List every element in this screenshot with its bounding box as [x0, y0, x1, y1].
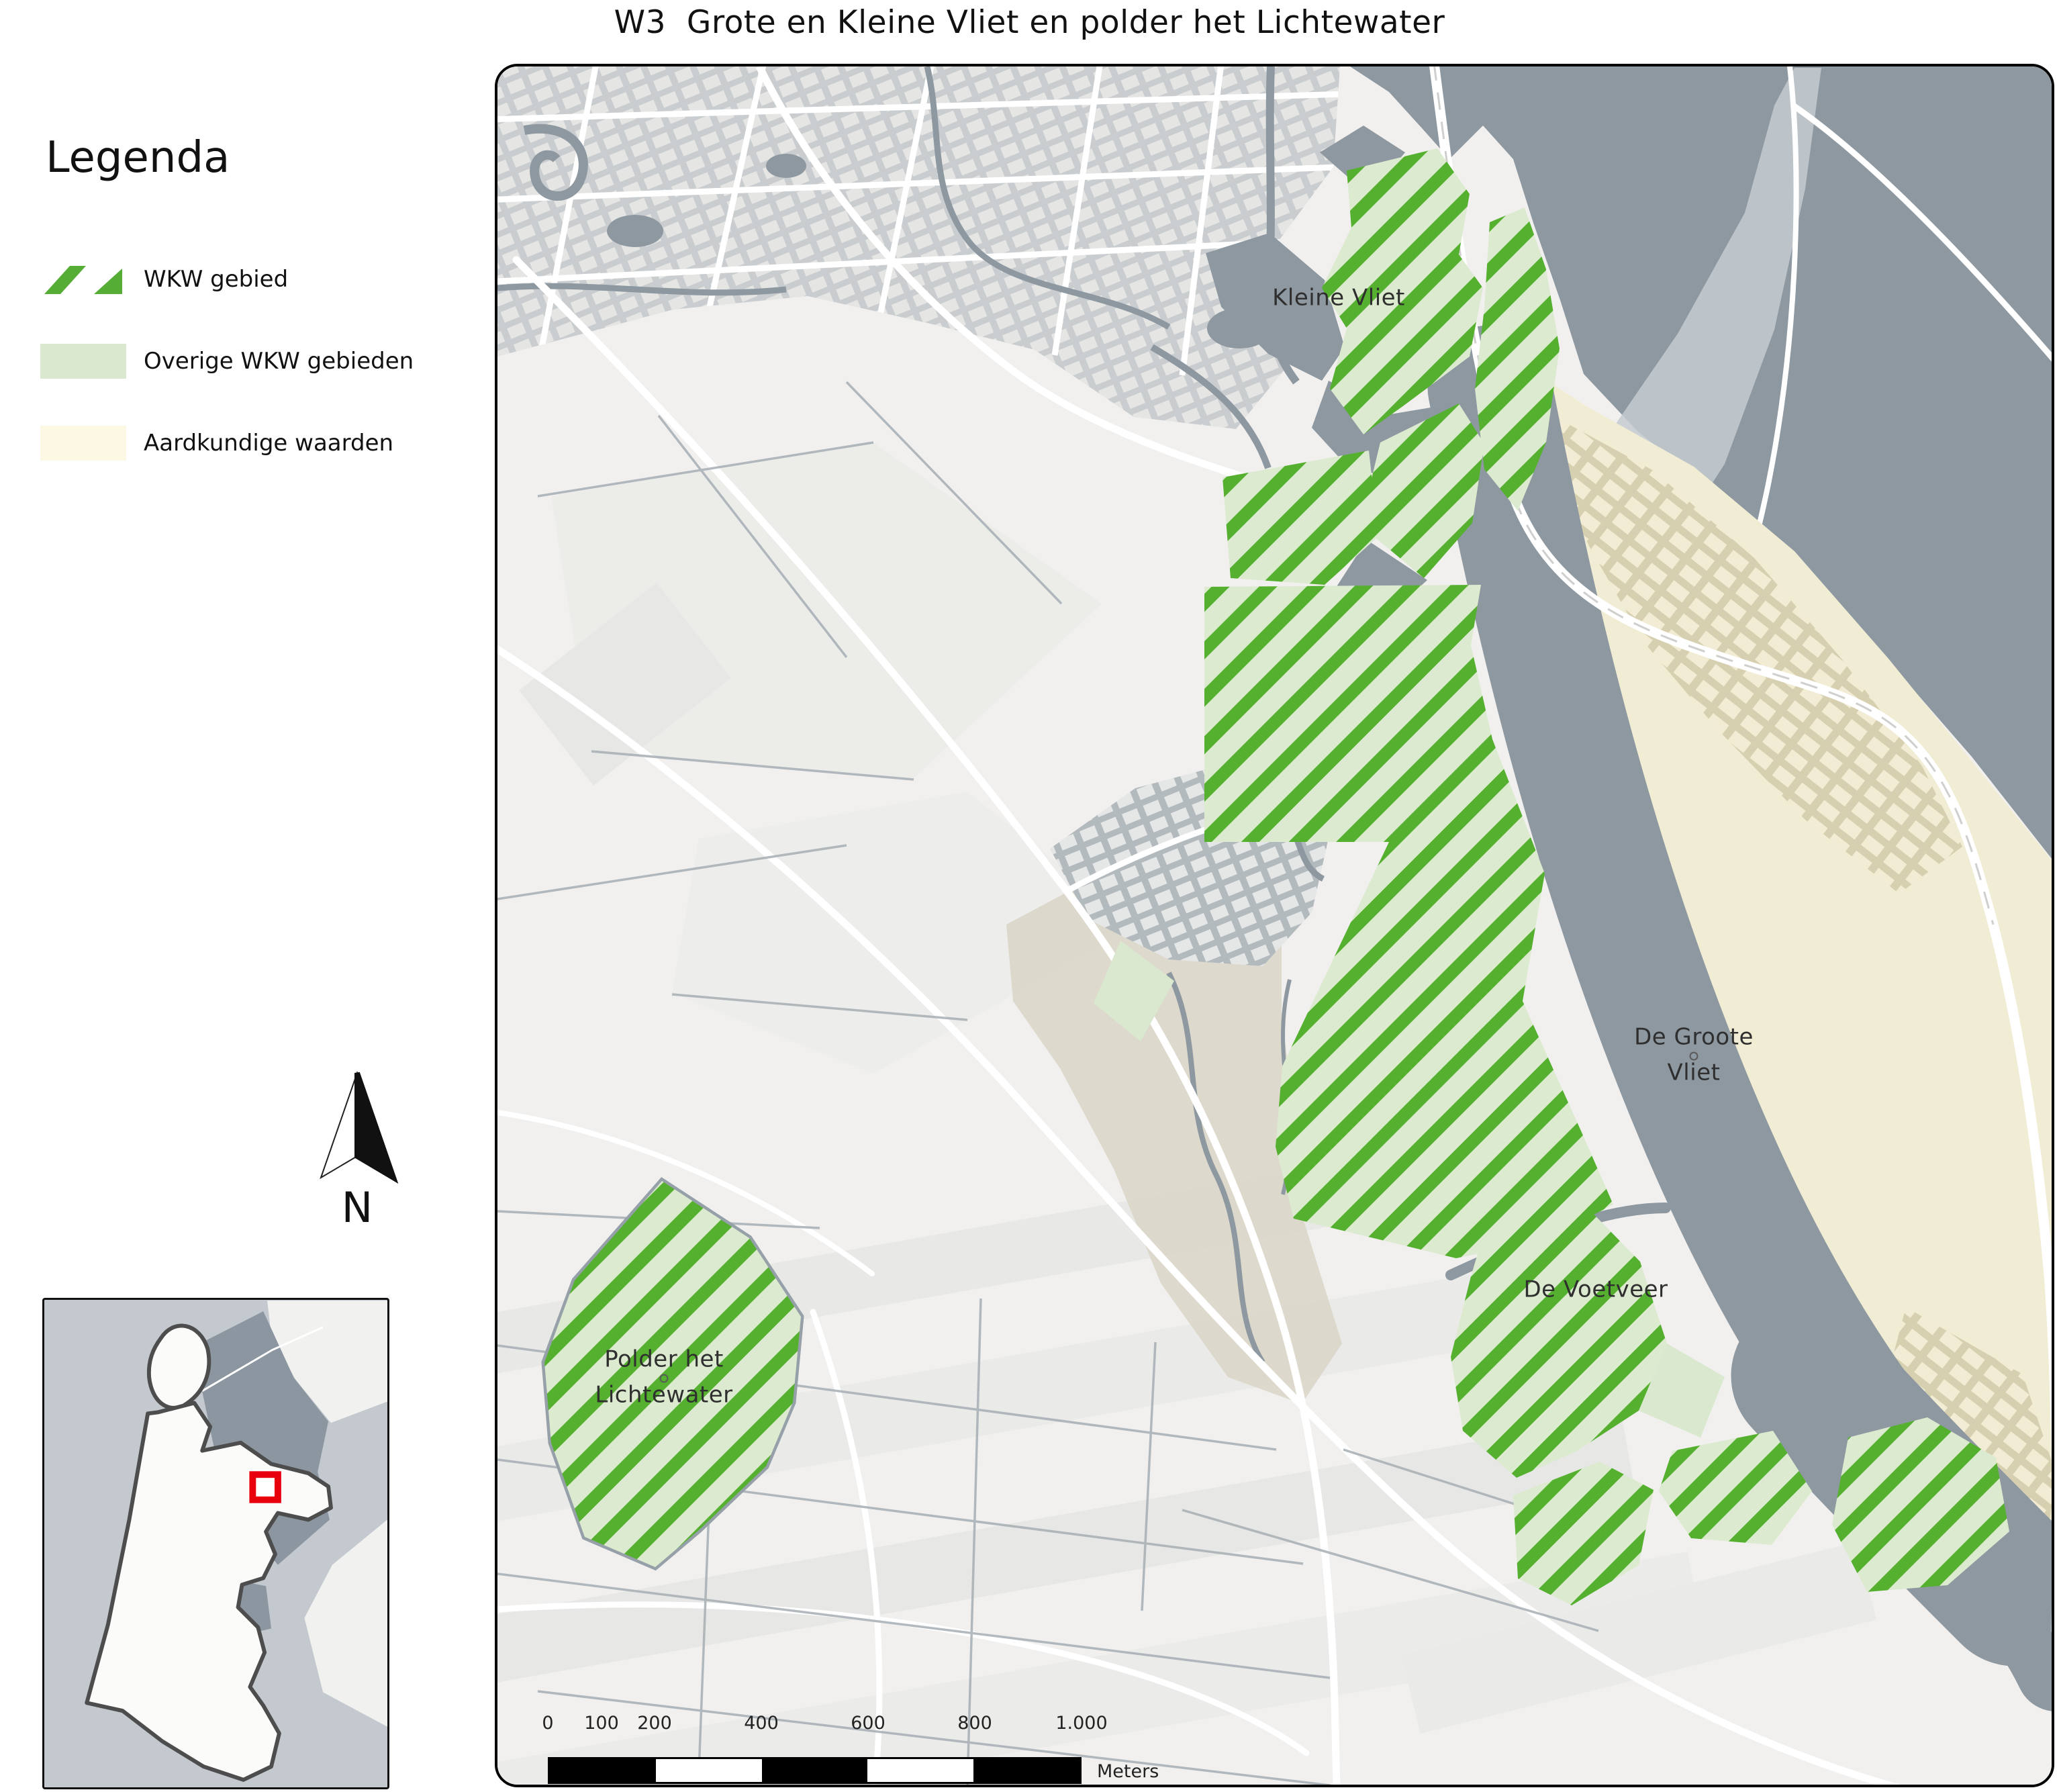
label-kleine-vliet: Kleine Vliet: [1272, 281, 1405, 316]
scale-bar: 0 100 200 400 600 800 1.000 Meters: [548, 1713, 1219, 1784]
scale-bar-ticks: 0 100 200 400 600 800 1.000: [548, 1713, 1082, 1736]
place-dot-groote-vliet: [1690, 1052, 1698, 1061]
scale-tick: 200: [637, 1713, 672, 1734]
aardkundige-swatch-icon: [40, 426, 126, 461]
scale-tick: 100: [584, 1713, 619, 1734]
scale-bar-unit: Meters: [1097, 1761, 1159, 1782]
label-de-voetveer: De Voetveer: [1523, 1272, 1668, 1308]
place-dot-polder: [660, 1374, 669, 1383]
legend-item-label: Aardkundige waarden: [144, 430, 393, 457]
legend-item-wkw-gebied: WKW gebied: [40, 262, 288, 297]
legend-item-aardkundige: Aardkundige waarden: [40, 426, 393, 461]
scale-tick: 0: [542, 1713, 553, 1734]
scale-tick: 800: [957, 1713, 992, 1734]
legend-item-label: Overige WKW gebieden: [144, 348, 414, 375]
scale-bar-segments: [548, 1757, 1082, 1784]
legend-title: Legenda: [46, 133, 230, 183]
inset-canvas: [44, 1300, 387, 1787]
scale-tick: 1.000: [1055, 1713, 1107, 1734]
wkw-hatch-swatch-icon: [40, 262, 126, 297]
scale-tick: 400: [744, 1713, 779, 1734]
page-title: W3 Grote en Kleine Vliet en polder het L…: [0, 4, 2059, 41]
legend-item-overige-wkw: Overige WKW gebieden: [40, 344, 414, 379]
map-canvas: Kleine Vliet De Groote Vliet De Voetveer…: [495, 64, 2054, 1787]
inset-locator-map: [42, 1298, 389, 1789]
inset-location-marker: [252, 1474, 278, 1500]
north-label: N: [342, 1183, 373, 1230]
scale-tick: 600: [851, 1713, 885, 1734]
overige-wkw-swatch-icon: [40, 344, 126, 379]
legend-item-label: WKW gebied: [144, 266, 288, 293]
north-arrow-icon: N: [310, 1069, 404, 1230]
